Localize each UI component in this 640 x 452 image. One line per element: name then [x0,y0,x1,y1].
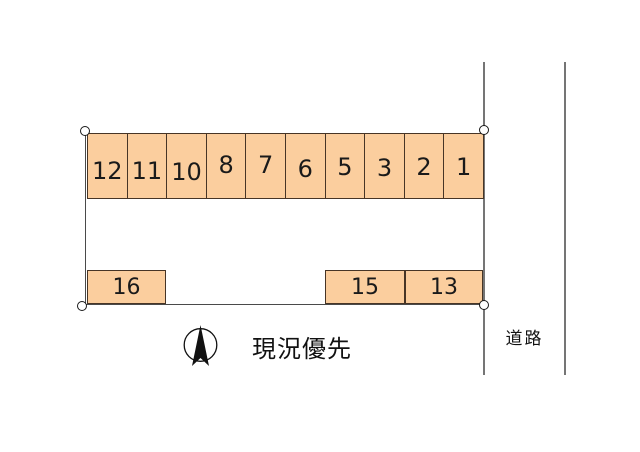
stall-number: 6 [298,155,313,183]
parking-stall-3: 3 [365,134,405,198]
north-arrow-icon [183,323,219,373]
stall-number: 13 [430,275,458,300]
stall-number: 1 [456,153,471,181]
parking-stall-15: 15 [325,270,405,304]
stall-number: 15 [351,275,379,300]
parking-stall-10: 10 [167,134,207,198]
parking-layout-diagram: 道路 1211108765321 161513 現況優先 [0,0,640,452]
stall-number: 5 [337,153,352,181]
stall-number: 8 [218,151,233,179]
stall-number: 2 [416,153,431,181]
road-edge-line-outer [564,62,566,375]
corner-marker-icon [80,126,90,136]
caption-text: 現況優先 [252,329,352,364]
parking-stall-13: 13 [405,270,483,304]
top-stall-row: 1211108765321 [87,133,484,199]
stall-number: 7 [258,151,273,179]
corner-marker-icon [479,125,489,135]
parking-stall-11: 11 [128,134,168,198]
corner-marker-icon [77,301,87,311]
road-label: 道路 [485,324,564,349]
stall-number: 3 [377,154,392,182]
plot-boundary-bottom [85,304,484,305]
stall-number: 16 [113,275,141,300]
stall-number: 12 [92,157,123,185]
parking-stall-5: 5 [326,134,366,198]
parking-stall-16: 16 [87,270,166,304]
parking-stall-7: 7 [246,134,286,198]
corner-marker-icon [479,300,489,310]
parking-stall-6: 6 [286,134,326,198]
parking-stall-8: 8 [207,134,247,198]
plot-boundary-left [85,132,86,305]
parking-stall-1: 1 [444,134,483,198]
stall-number: 11 [132,157,163,185]
parking-stall-2: 2 [405,134,445,198]
stall-number: 10 [171,158,202,186]
parking-stall-12: 12 [88,134,128,198]
